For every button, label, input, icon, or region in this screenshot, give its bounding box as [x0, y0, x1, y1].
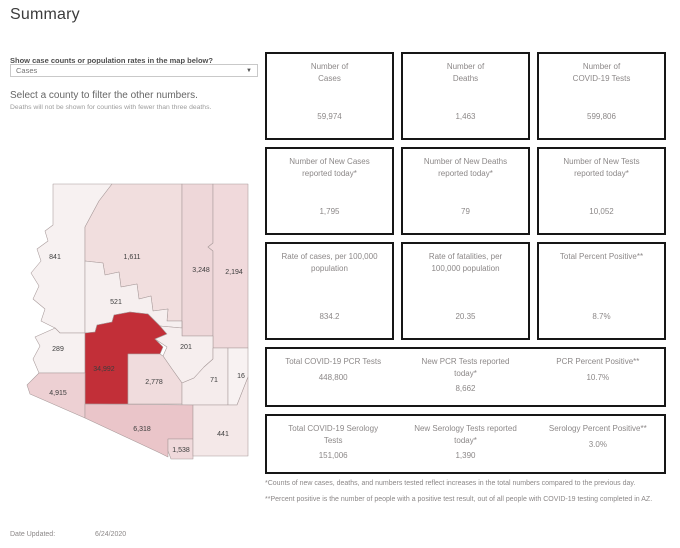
band-value: 10.7%	[532, 373, 664, 382]
stat-card-title: Number of Deaths	[403, 61, 528, 85]
stat-card-case-rate: Rate of cases, per 100,000 population 83…	[265, 242, 394, 340]
stat-card-title: Number of New Cases reported today*	[267, 156, 392, 180]
band-value: 151,006	[267, 451, 399, 460]
stat-card-total-percent-positive: Total Percent Positive** 8.7%	[537, 242, 666, 340]
stat-card-number-of-deaths: Number of Deaths 1,463	[401, 52, 530, 140]
county-label-coconino: 1,611	[124, 254, 141, 261]
county-label-pima: 6,318	[133, 426, 151, 433]
county-apache[interactable]	[208, 184, 248, 348]
stat-card-value: 10,052	[539, 207, 664, 216]
stat-card-value: 1,795	[267, 207, 392, 216]
county-label-cochise: 441	[217, 431, 229, 438]
stat-card-title: Rate of fatalities, per 100,000 populati…	[403, 251, 528, 275]
county-label-apache: 2,194	[225, 269, 243, 276]
serology-new-cell: New Serology Tests reported today* 1,390	[399, 416, 531, 472]
band-title: Total COVID-19 Serology Tests	[267, 423, 399, 446]
stat-card-new-cases: Number of New Cases reported today* 1,79…	[265, 147, 394, 235]
stat-card-value: 8.7%	[539, 312, 664, 321]
band-title: New Serology Tests reported today*	[399, 423, 531, 446]
county-navajo[interactable]	[182, 184, 213, 336]
date-updated-value: 6/24/2020	[95, 531, 126, 538]
footnote-new-counts: *Counts of new cases, deaths, and number…	[265, 479, 666, 489]
county-label-pinal: 2,778	[145, 379, 163, 386]
county-label-la-paz: 289	[52, 346, 64, 353]
footnotes: *Counts of new cases, deaths, and number…	[265, 479, 666, 511]
stat-card-fatality-rate: Rate of fatalities, per 100,000 populati…	[401, 242, 530, 340]
county-label-yuma: 4,915	[49, 390, 67, 397]
county-label-graham: 71	[210, 377, 218, 384]
stat-card-title: Number of New Deaths reported today*	[403, 156, 528, 180]
arizona-county-map: 841 1,611 3,248 2,194 521 289 34,992 201…	[15, 181, 260, 466]
county-filter-hint: Select a county to filter the other numb…	[10, 90, 198, 101]
pcr-percent-cell: PCR Percent Positive** 10.7%	[532, 349, 664, 405]
stat-card-title: Total Percent Positive**	[539, 251, 664, 263]
stat-card-title: Number of COVID-19 Tests	[539, 61, 664, 85]
stat-card-title: Number of New Tests reported today*	[539, 156, 664, 180]
serology-total-cell: Total COVID-19 Serology Tests 151,006	[267, 416, 399, 472]
pcr-total-cell: Total COVID-19 PCR Tests 448,800	[267, 349, 399, 405]
county-label-mohave: 841	[49, 254, 61, 261]
stat-card-title: Rate of cases, per 100,000 population	[267, 251, 392, 275]
page-title: Summary	[10, 6, 80, 24]
pcr-new-cell: New PCR Tests reported today* 8,662	[399, 349, 531, 405]
band-title: Total COVID-19 PCR Tests	[267, 356, 399, 368]
county-label-gila: 201	[180, 344, 192, 351]
band-value: 448,800	[267, 373, 399, 382]
stat-card-value: 79	[403, 207, 528, 216]
stat-card-number-of-tests: Number of COVID-19 Tests 599,806	[537, 52, 666, 140]
chevron-down-icon: ▼	[246, 68, 252, 74]
stat-card-value: 599,806	[539, 112, 664, 121]
band-value: 8,662	[399, 384, 531, 393]
serology-percent-cell: Serology Percent Positive** 3.0%	[532, 416, 664, 472]
date-updated-label: Date Updated:	[10, 531, 55, 538]
map-metric-selected-value: Cases	[16, 66, 37, 75]
footnote-percent-positive: **Percent positive is the number of peop…	[265, 495, 666, 505]
stat-card-value: 834.2	[267, 312, 392, 321]
serology-tests-band: Total COVID-19 Serology Tests 151,006 Ne…	[265, 414, 666, 474]
stat-card-new-deaths: Number of New Deaths reported today* 79	[401, 147, 530, 235]
county-label-maricopa: 34,992	[93, 366, 115, 373]
stat-card-value: 59,974	[267, 112, 392, 121]
pcr-tests-band: Total COVID-19 PCR Tests 448,800 New PCR…	[265, 347, 666, 407]
stat-card-number-of-cases: Number of Cases 59,974	[265, 52, 394, 140]
stat-card-value: 1,463	[403, 112, 528, 121]
county-label-navajo: 3,248	[192, 267, 210, 274]
band-title: PCR Percent Positive**	[532, 356, 664, 368]
county-label-santa-cruz: 1,538	[172, 447, 190, 454]
map-metric-select[interactable]: Cases ▼	[10, 64, 258, 77]
band-title: Serology Percent Positive**	[532, 423, 664, 435]
summary-stats-panel: Number of Cases 59,974 Number of Deaths …	[265, 52, 666, 481]
stat-card-value: 20.35	[403, 312, 528, 321]
stat-card-new-tests: Number of New Tests reported today* 10,0…	[537, 147, 666, 235]
band-value: 3.0%	[532, 440, 664, 449]
stat-card-title: Number of Cases	[267, 61, 392, 85]
band-value: 1,390	[399, 451, 531, 460]
deaths-note: Deaths will not be shown for counties wi…	[10, 104, 211, 111]
county-label-greenlee: 16	[237, 373, 245, 380]
county-label-yavapai: 521	[110, 299, 122, 306]
band-title: New PCR Tests reported today*	[399, 356, 531, 379]
